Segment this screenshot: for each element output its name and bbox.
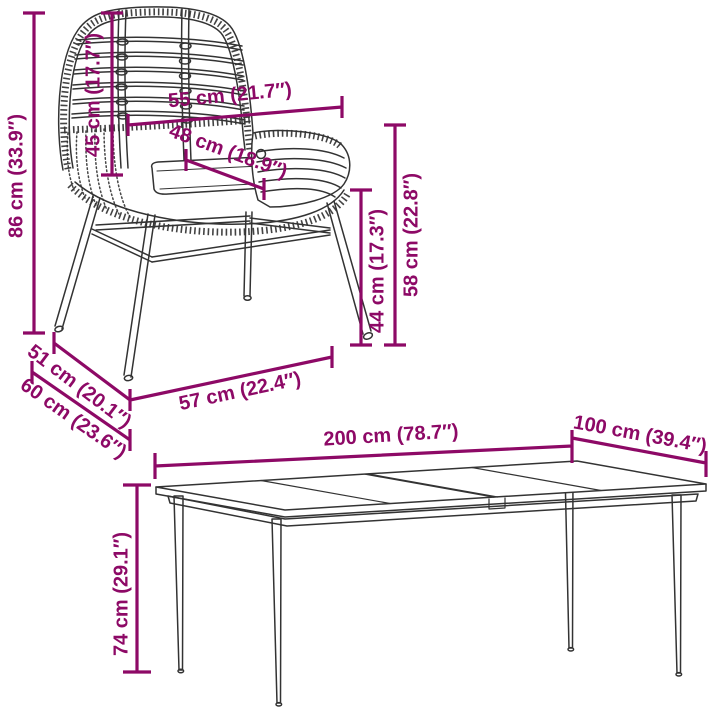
dim-chair-backrest-height-label: 45 cm (17.7″) (83, 33, 106, 157)
chair-stretchers (92, 216, 330, 262)
line-art (0, 0, 720, 720)
table-drawing (156, 461, 706, 706)
dimension-diagram: 86 cm (33.9″) 45 cm (17.7″) 55 cm (21.7″… (0, 0, 720, 720)
dim-chair-seat-height-label: 44 cm (17.3″) (367, 209, 390, 333)
dim-chair-total-height-label: 86 cm (33.9″) (6, 114, 29, 238)
dim-chair-armrest-height-label: 58 cm (22.8″) (401, 173, 424, 297)
dim-table-height-label: 74 cm (29.1″) (111, 532, 134, 656)
table-top (156, 461, 706, 517)
